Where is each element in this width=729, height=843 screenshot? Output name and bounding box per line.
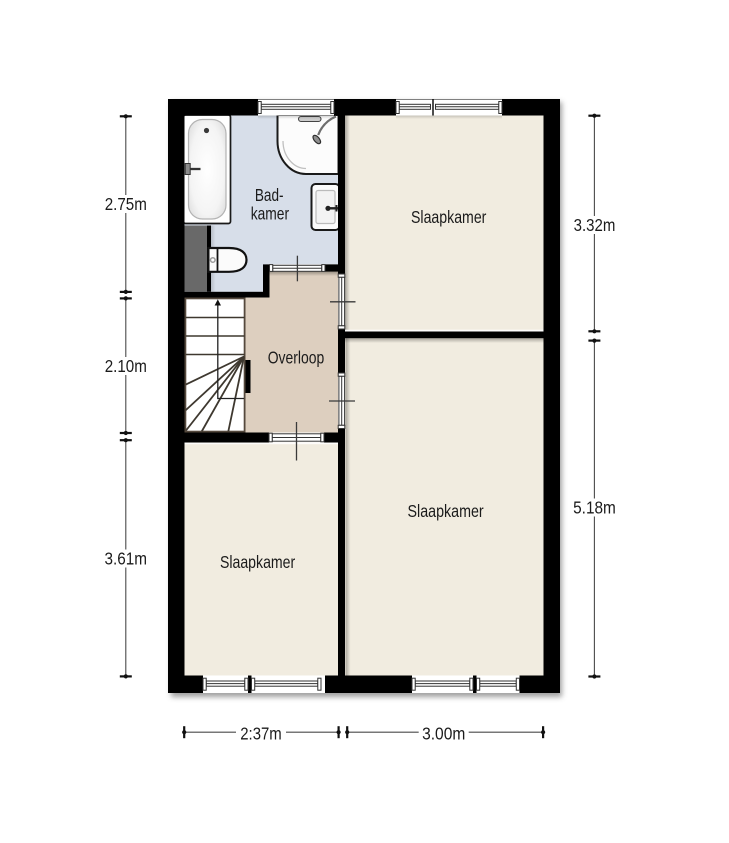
svg-text:Slaapkamer: Slaapkamer bbox=[408, 501, 484, 521]
svg-text:3.00m: 3.00m bbox=[422, 724, 465, 744]
svg-text:2:37m: 2:37m bbox=[240, 724, 282, 744]
svg-text:3.32m: 3.32m bbox=[574, 215, 616, 235]
svg-text:5.18m: 5.18m bbox=[573, 498, 616, 518]
svg-text:2.75m: 2.75m bbox=[105, 194, 147, 214]
svg-text:Overloop: Overloop bbox=[268, 348, 325, 368]
svg-text:Bad-: Bad- bbox=[255, 185, 284, 205]
svg-text:kamer: kamer bbox=[251, 203, 290, 223]
svg-text:2.10m: 2.10m bbox=[105, 356, 147, 376]
svg-text:3.61m: 3.61m bbox=[105, 548, 148, 568]
svg-text:Slaapkamer: Slaapkamer bbox=[411, 207, 487, 227]
svg-text:Slaapkamer: Slaapkamer bbox=[220, 552, 295, 572]
